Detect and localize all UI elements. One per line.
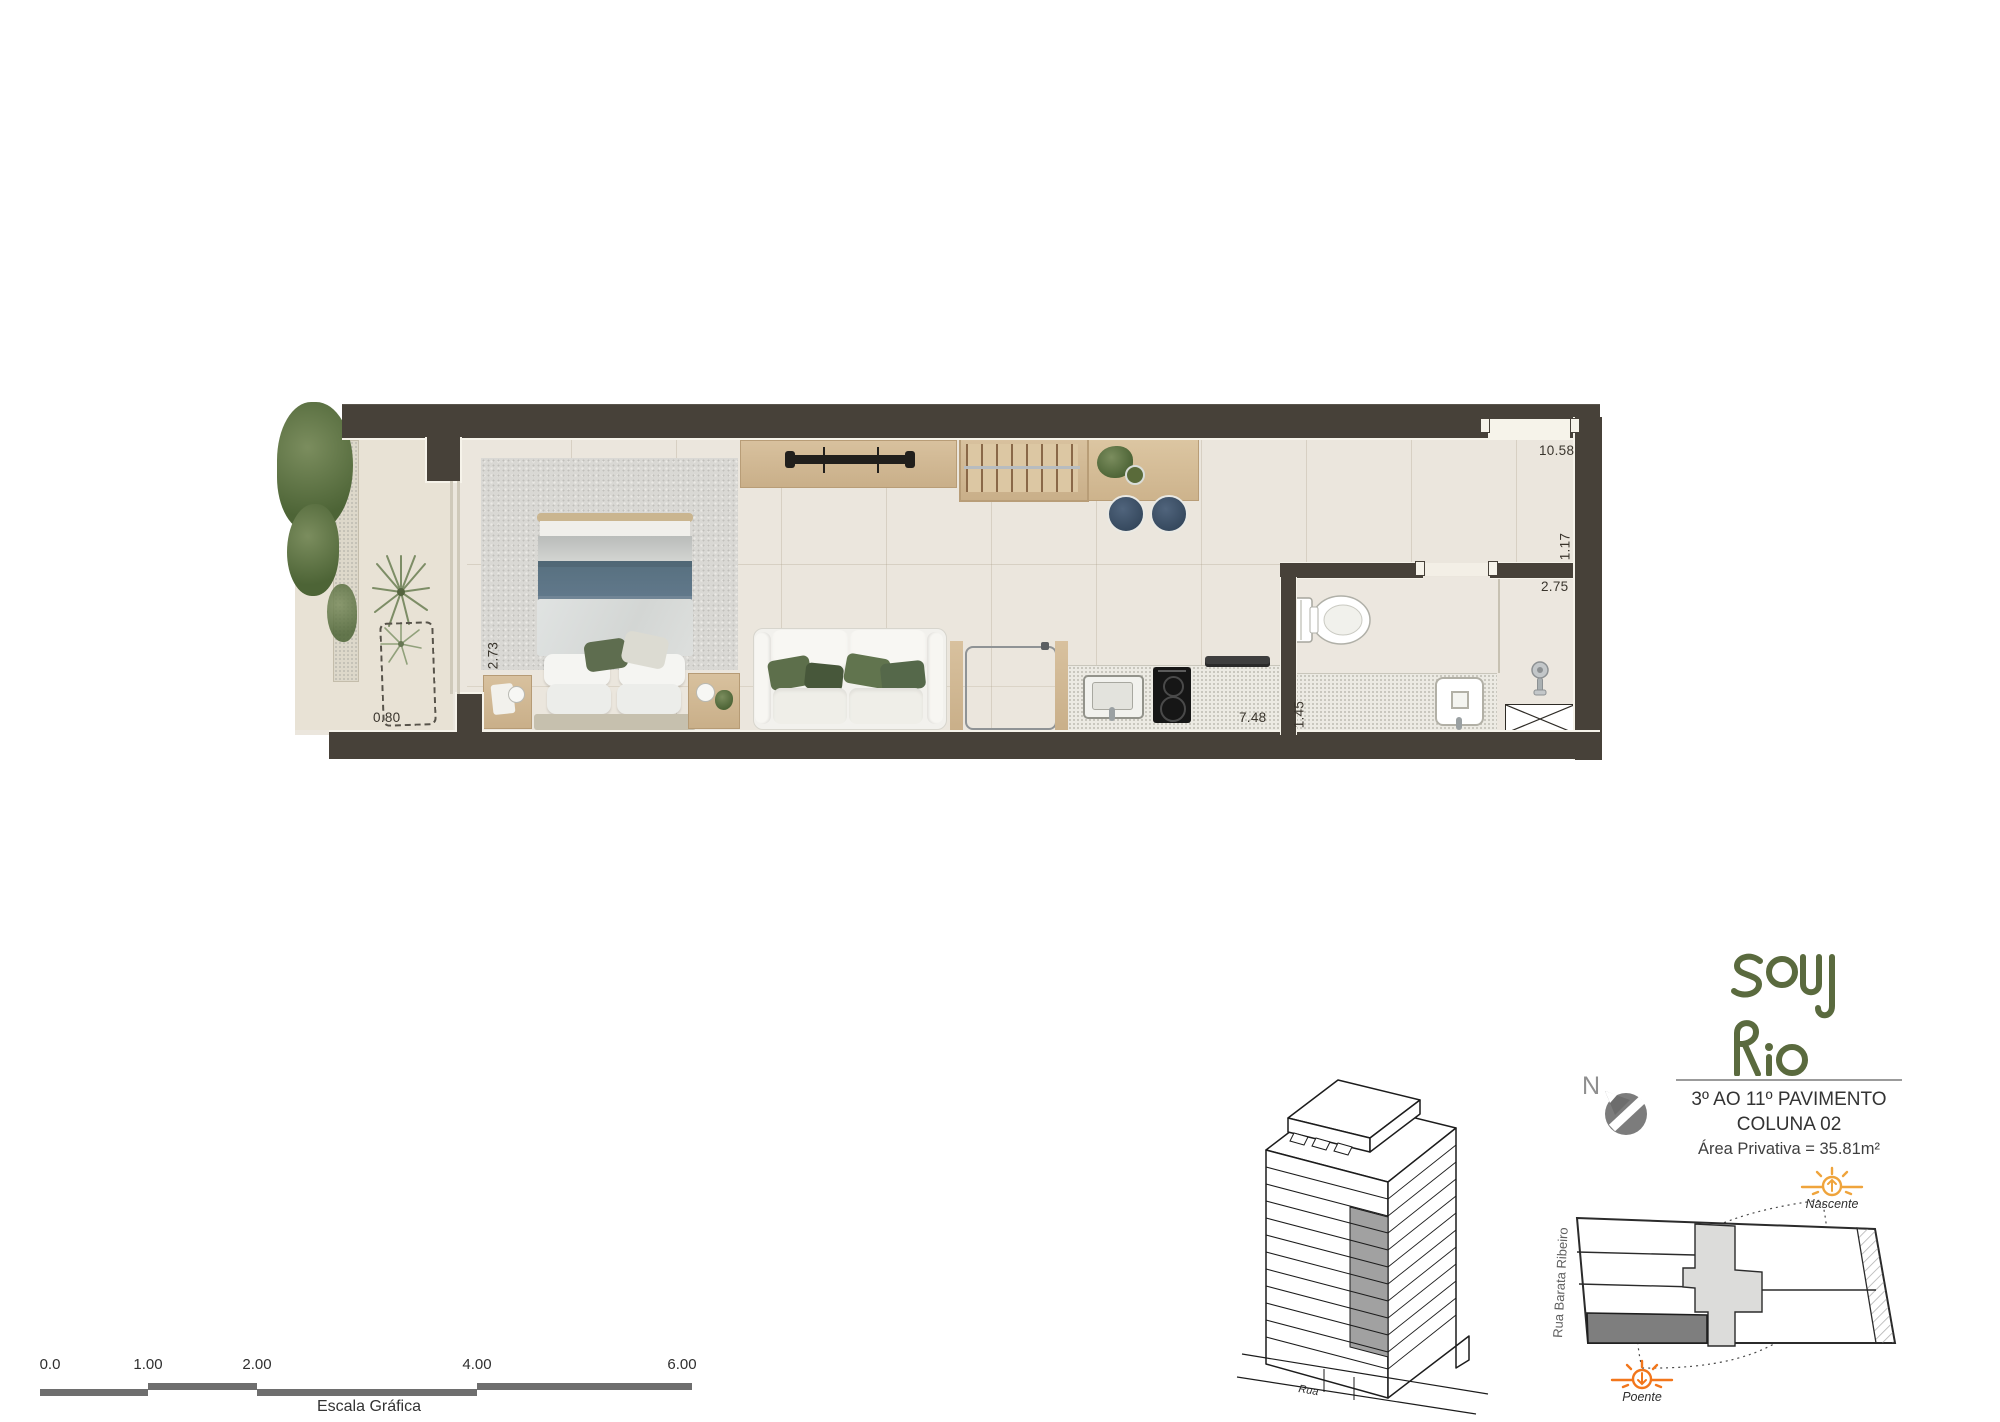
- title-block: 3º AO 11º PAVIMENTO COLUNA 02 Área Priva…: [1676, 1079, 1902, 1159]
- shelf-metal-rail: [964, 466, 1080, 469]
- vanity-sink: [1435, 677, 1484, 726]
- street-label: Rua: [1298, 1383, 1320, 1398]
- wall-bottom: [329, 730, 1600, 759]
- fridge-side-panel: [950, 641, 963, 731]
- scale-tick-label: 6.00: [659, 1356, 705, 1373]
- dim-balcony-planter: 0.80: [373, 710, 400, 725]
- dining-table: [1088, 438, 1199, 501]
- dim-bath-width: 2.75: [1541, 579, 1568, 594]
- sunrise-icon: [1802, 1168, 1862, 1195]
- table-bowl-icon: [1125, 465, 1145, 485]
- scale-tick-label: 1.00: [125, 1356, 171, 1373]
- nightstand-left: [483, 675, 532, 729]
- street-name-vertical: Rua Barata Ribeiro: [1550, 1227, 1571, 1338]
- column-title: COLUNA 02: [1676, 1114, 1902, 1136]
- balcony-plant-icon: [287, 504, 339, 596]
- lamp-icon: [508, 686, 525, 703]
- title-divider: [1676, 1079, 1902, 1081]
- scale-segment: [257, 1389, 477, 1396]
- site-plan: Nascente Poente Rua Barata Ribeiro: [1530, 1160, 1930, 1422]
- sofa-seat-cushion: [849, 688, 923, 724]
- entry-door-opening: [1488, 419, 1570, 438]
- rail-bracket: [905, 451, 915, 468]
- sliding-door-track: [457, 481, 460, 694]
- dim-hall-width: 1.17: [1558, 527, 1573, 567]
- dim-bedroom-width: 2.73: [486, 636, 501, 676]
- wall-stub-balcony: [425, 437, 462, 483]
- dim-kitchen-run: 7.48: [1239, 710, 1266, 725]
- bed-blue-blanket: [538, 561, 692, 601]
- sliding-door-track: [450, 481, 453, 694]
- scale-segment: [477, 1383, 692, 1390]
- kitchen-sink-basin: [1092, 682, 1133, 710]
- wall-right: [1573, 417, 1602, 760]
- cooktop-controls: [1158, 670, 1186, 672]
- door-jamb: [1480, 418, 1490, 433]
- wall-top: [342, 404, 1600, 440]
- shower-glass-partition: [1498, 577, 1500, 673]
- private-area-label: Área Privativa = 35.81m²: [1676, 1140, 1902, 1159]
- scale-tick-label: 4.00: [454, 1356, 500, 1373]
- bed-footer-bench: [534, 714, 696, 730]
- clothes-rail-icon: [789, 455, 911, 464]
- lamp-icon: [696, 683, 715, 702]
- north-compass-icon: N: [1578, 1064, 1662, 1148]
- fridge-side-panel: [1055, 641, 1068, 731]
- range-hood: [1205, 656, 1270, 667]
- shower-valve-icon: [1527, 660, 1553, 698]
- fridge: [965, 646, 1057, 730]
- slotted-shelf-unit: [959, 438, 1089, 502]
- highlighted-unit: [1587, 1313, 1707, 1343]
- hanger-hook: [823, 447, 825, 473]
- stool: [1150, 495, 1188, 533]
- soul-rio-logo: [1722, 948, 1838, 1076]
- potted-plant-icon: [715, 690, 733, 710]
- floor-plan-sheet: 10.58 1.17 2.75 7.48 1.45 2.73 0.80 0.0 …: [0, 0, 2000, 1422]
- door-jamb: [1415, 561, 1425, 576]
- sunset-label: Poente: [1622, 1390, 1662, 1404]
- sofa: [753, 628, 945, 728]
- stool: [1107, 495, 1145, 533]
- scale-caption: Escala Gráfica: [24, 1398, 714, 1416]
- scale-tick-label: 0.0: [27, 1356, 73, 1373]
- door-jamb: [1488, 561, 1498, 576]
- bed-gray-blanket: [538, 536, 692, 563]
- scale-tick-label: 2.00: [234, 1356, 280, 1373]
- door-jamb: [1570, 418, 1580, 433]
- building-isometric: Rua: [1236, 1002, 1492, 1422]
- nightstand-right: [688, 673, 740, 729]
- bed-pillow: [617, 684, 681, 714]
- scale-segment: [40, 1389, 148, 1396]
- burner-icon: [1160, 696, 1186, 722]
- hanger-hook: [877, 447, 879, 473]
- wall-shelf-rail: [740, 440, 957, 488]
- sunset-icon: [1612, 1361, 1672, 1388]
- sofa-seat-cushion: [773, 688, 847, 724]
- bed-pillow: [547, 684, 611, 714]
- floor-plan: 10.58 1.17 2.75 7.48 1.45 2.73 0.80: [287, 404, 1600, 760]
- pavement-title: 3º AO 11º PAVIMENTO: [1676, 1089, 1902, 1111]
- dim-bath-depth: 1.45: [1292, 695, 1307, 735]
- wall-bath-top-a: [1280, 562, 1423, 579]
- cooktop: [1153, 667, 1191, 723]
- burner-icon: [1163, 676, 1184, 697]
- door-pocket-block: [455, 692, 484, 732]
- sofa-arm: [927, 632, 943, 724]
- dim-total-length: 10.58: [1539, 443, 1574, 458]
- scale-bar: 0.0 1.00 2.00 4.00 6.00 Escala Gráfica: [24, 1352, 714, 1420]
- bath-door-opening: [1423, 563, 1490, 576]
- scale-segment: [148, 1383, 257, 1390]
- rail-bracket: [785, 451, 795, 468]
- shaft-x-icon: [1506, 705, 1574, 733]
- sunrise-label: Nascente: [1806, 1197, 1859, 1211]
- bed: [537, 510, 693, 730]
- fridge-hinge: [1041, 642, 1049, 650]
- north-label: N: [1582, 1072, 1600, 1100]
- balcony-plant-icon: [327, 584, 357, 642]
- faucet-icon: [1456, 717, 1462, 730]
- kitchen-sink: [1083, 675, 1144, 719]
- vanity-sink-drain: [1451, 691, 1469, 709]
- faucet-icon: [1109, 707, 1115, 721]
- toilet-icon: [1290, 593, 1376, 647]
